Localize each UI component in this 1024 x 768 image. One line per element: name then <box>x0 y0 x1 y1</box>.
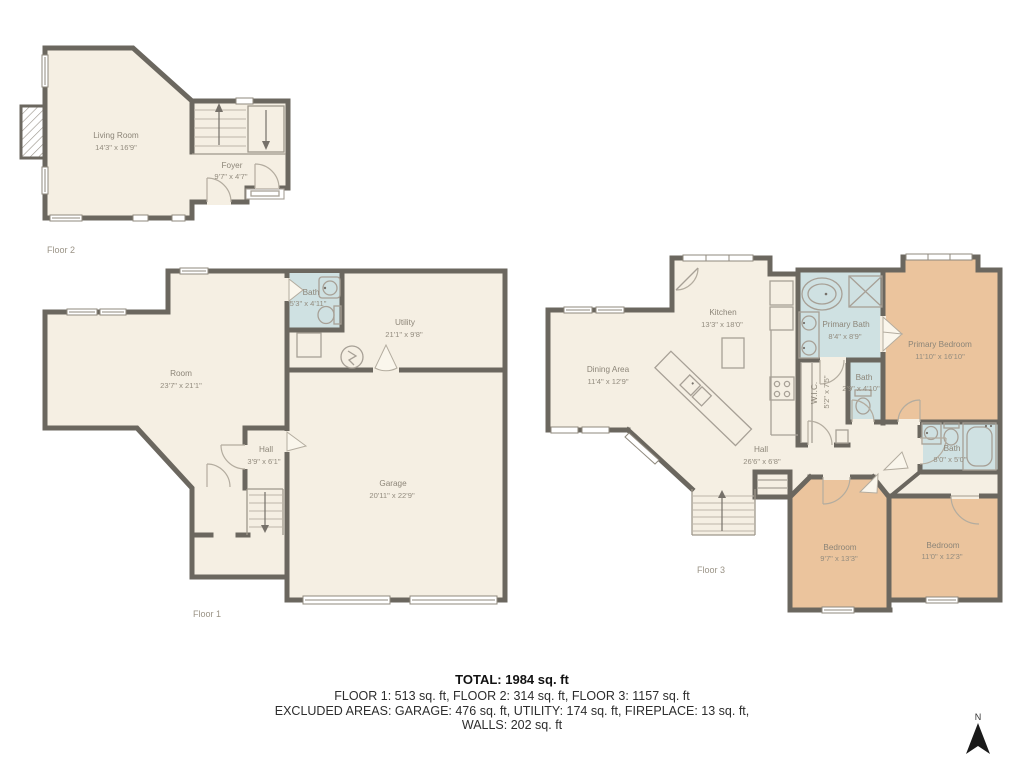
bedroom2-label: Bedroom <box>926 541 959 550</box>
utility-dims: 21'1" x 9'8" <box>385 330 423 339</box>
kitchen-dims: 13'3" x 18'0" <box>701 320 743 329</box>
floor3-plan: Dining Area 11'4" x 12'9" Kitchen 13'3" … <box>548 254 1000 613</box>
floor2-plan: Living Room 14'3" x 16'9" Foyer 9'7" x 4… <box>21 48 288 255</box>
room-dims: 23'7" x 21'1" <box>160 381 202 390</box>
hall-label: Hall <box>259 445 273 454</box>
dining-label: Dining Area <box>587 365 630 374</box>
hall-dims: 3'9" x 6'1" <box>247 457 281 466</box>
bedroom1-label: Bedroom <box>823 543 856 552</box>
walls-area: WALLS: 202 sq. ft <box>0 718 1024 733</box>
wic-label: W.I.C. <box>810 382 819 404</box>
bath-label: Bath <box>303 288 320 297</box>
total-area: TOTAL: 1984 sq. ft <box>0 672 1024 687</box>
bedroom1-dims: 9'7" x 13'3" <box>820 554 858 563</box>
hall-bath-dims: 8'0" x 5'0" <box>933 455 967 464</box>
hall-bath-label: Bath <box>944 444 961 453</box>
garage-label: Garage <box>379 479 407 488</box>
primary-bedroom-label: Primary Bedroom <box>908 340 972 349</box>
living-room-label: Living Room <box>93 131 139 140</box>
floor1-plan: Room 23'7" x 21'1" Bath 5'3" x 4'11" Uti… <box>45 268 505 619</box>
floor1-caption: Floor 1 <box>193 609 221 619</box>
utility-label: Utility <box>395 318 416 327</box>
foyer-dims: 9'7" x 4'7" <box>214 172 248 181</box>
living-room-dims: 14'3" x 16'9" <box>95 143 137 152</box>
primary-bath-area <box>798 270 883 360</box>
bath-dims: 5'3" x 4'11" <box>290 299 327 308</box>
kitchen-label: Kitchen <box>709 308 737 317</box>
floorplan-canvas: Living Room 14'3" x 16'9" Foyer 9'7" x 4… <box>0 0 1024 768</box>
area-summary: TOTAL: 1984 sq. ft FLOOR 1: 513 sq. ft, … <box>0 672 1024 733</box>
excluded-areas: EXCLUDED AREAS: GARAGE: 476 sq. ft, UTIL… <box>0 704 1024 719</box>
hall3-label: Hall <box>754 445 768 454</box>
garage-dims: 20'11" x 22'9" <box>369 491 415 500</box>
primary-bedroom-dims: 11'10" x 16'10" <box>915 352 965 361</box>
floor1-outline <box>45 271 505 600</box>
small-bath-dims: 2'9" x 4'10" <box>842 384 880 393</box>
floor-areas: FLOOR 1: 513 sq. ft, FLOOR 2: 314 sq. ft… <box>0 689 1024 704</box>
room-label: Room <box>170 369 192 378</box>
foyer-label: Foyer <box>222 161 243 170</box>
bedroom2-dims: 11'0" x 12'3" <box>921 552 962 561</box>
floor3-caption: Floor 3 <box>697 565 725 575</box>
wic-dims: 5'2" x 7'5" <box>822 375 831 409</box>
hall3-dims: 26'6" x 6'8" <box>743 457 781 466</box>
floor2-caption: Floor 2 <box>47 245 75 255</box>
primary-bath-dims: 8'4" x 8'9" <box>828 332 862 341</box>
primary-bath-label: Primary Bath <box>822 320 870 329</box>
small-bath-label: Bath <box>856 373 873 382</box>
dining-dims: 11'4" x 12'9" <box>587 377 628 386</box>
